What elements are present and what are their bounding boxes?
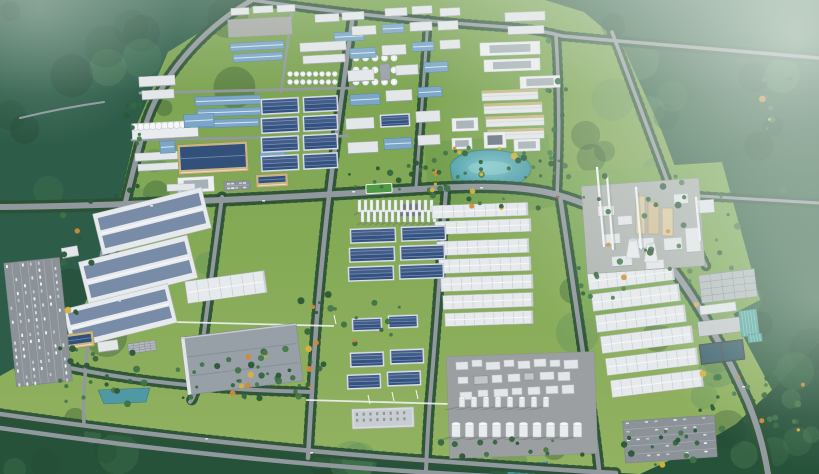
tree — [77, 236, 81, 240]
tree — [306, 382, 311, 387]
tree — [256, 395, 262, 401]
tree — [214, 363, 220, 369]
tree — [282, 346, 288, 352]
tree — [276, 373, 282, 379]
tree — [65, 307, 72, 314]
tree — [432, 169, 435, 172]
tree — [684, 435, 688, 439]
tree — [380, 185, 384, 189]
tree — [91, 352, 95, 356]
tree — [135, 142, 139, 146]
tree — [664, 430, 667, 433]
tree — [694, 440, 699, 445]
tree — [239, 384, 244, 389]
building-wf — [558, 372, 570, 381]
building-wf — [518, 361, 530, 369]
tree — [660, 462, 666, 468]
tree — [354, 185, 357, 188]
building-bw — [350, 351, 385, 367]
tree — [262, 350, 268, 356]
tree — [325, 291, 332, 298]
tree — [130, 125, 135, 130]
building-ww — [445, 310, 533, 326]
tree — [61, 251, 67, 257]
building-lb — [184, 113, 215, 128]
building-wf — [492, 375, 502, 383]
building-wf — [456, 362, 468, 370]
tree — [69, 345, 76, 352]
building-lb — [350, 93, 381, 106]
west-pond — [98, 388, 150, 404]
building-bw — [347, 373, 382, 389]
tree — [327, 305, 334, 312]
tree — [76, 362, 79, 365]
building-wf — [550, 360, 560, 367]
tree — [231, 383, 235, 387]
tree — [314, 340, 319, 345]
building-bw — [350, 227, 396, 244]
tree — [654, 463, 657, 466]
tree — [509, 436, 515, 442]
tree — [248, 372, 254, 378]
tree — [305, 346, 312, 353]
building-bw — [261, 116, 300, 134]
building-tan — [177, 141, 248, 175]
tree — [236, 379, 239, 382]
tree — [88, 260, 94, 266]
tree — [437, 185, 443, 191]
tree — [419, 168, 423, 172]
tree — [195, 385, 198, 388]
building-bw — [388, 314, 418, 328]
vehicle — [310, 452, 313, 454]
tree — [60, 212, 66, 218]
tree — [528, 450, 532, 454]
tree — [543, 447, 548, 452]
building-wf — [540, 372, 554, 380]
tree — [341, 321, 347, 327]
tree — [258, 372, 264, 378]
tree — [242, 394, 247, 399]
tree — [200, 362, 205, 367]
tree — [75, 228, 80, 233]
aerial-render-canvas — [0, 0, 819, 474]
tree — [452, 441, 458, 447]
tree — [371, 300, 377, 306]
tree — [104, 382, 108, 386]
tree — [348, 173, 351, 176]
building-bw — [261, 97, 300, 115]
industrial-park-render: Aerial 3D rendering of an industrial par… — [0, 0, 819, 474]
tree — [430, 188, 435, 193]
building-lb — [160, 141, 176, 154]
tree — [245, 382, 251, 388]
tree — [192, 370, 196, 374]
building-sub — [352, 407, 415, 429]
tree — [396, 177, 402, 183]
tree — [398, 306, 401, 309]
tree — [409, 172, 414, 177]
vehicle — [262, 200, 265, 202]
tree — [398, 188, 401, 191]
tree — [248, 362, 255, 369]
building-wf — [546, 386, 558, 394]
tree — [88, 198, 94, 204]
building-bw — [303, 133, 339, 151]
tree — [58, 346, 62, 350]
tree — [75, 312, 78, 315]
tree — [389, 333, 393, 337]
tree — [64, 384, 68, 388]
tree — [297, 297, 304, 304]
tree — [311, 305, 315, 309]
building-bw — [399, 263, 444, 280]
building-bw — [348, 265, 394, 282]
tree — [493, 440, 498, 445]
tree — [516, 441, 520, 445]
tree — [135, 184, 139, 188]
tree — [693, 429, 697, 433]
tree — [459, 453, 465, 459]
building-bw — [349, 246, 395, 263]
building-bw — [401, 225, 446, 242]
building-wf — [472, 360, 482, 367]
tree — [580, 452, 584, 456]
tree — [188, 395, 193, 400]
building-wf — [534, 359, 546, 367]
tree — [288, 368, 292, 372]
building-bw — [390, 348, 425, 364]
vehicle — [352, 191, 355, 193]
tree — [407, 164, 411, 168]
tree — [430, 193, 436, 199]
building-wf — [562, 385, 574, 394]
tree — [235, 367, 241, 373]
tree — [434, 182, 437, 185]
building-wf — [478, 390, 488, 397]
tree — [230, 390, 236, 396]
building-wf — [508, 374, 520, 382]
building-parking — [224, 180, 250, 190]
tree — [258, 355, 264, 361]
building-wf — [486, 362, 500, 370]
tree — [93, 356, 99, 362]
building-wf — [512, 388, 522, 395]
building-gf — [474, 376, 488, 384]
vehicle — [118, 300, 121, 302]
building-tan — [256, 173, 289, 188]
tree — [137, 136, 142, 141]
tree — [315, 311, 318, 314]
tree — [298, 384, 301, 387]
tree — [304, 328, 311, 335]
tree — [675, 438, 680, 443]
building-bw — [303, 114, 339, 132]
tree — [275, 377, 282, 384]
tree — [684, 453, 689, 458]
building-bw — [400, 244, 445, 261]
tree — [89, 380, 93, 384]
tree — [379, 328, 383, 332]
tree — [551, 439, 554, 442]
tree — [127, 379, 132, 384]
building-wf — [346, 117, 375, 129]
tree — [621, 441, 627, 447]
tree — [352, 339, 356, 343]
tree — [67, 358, 73, 364]
tree — [226, 357, 231, 362]
building-wf — [348, 141, 379, 154]
building-field — [366, 183, 392, 193]
tree — [293, 389, 297, 393]
tree — [266, 372, 269, 375]
tree — [290, 375, 296, 381]
tree — [484, 452, 489, 457]
tree — [255, 382, 259, 386]
building-bw — [380, 113, 411, 128]
vehicle — [205, 438, 208, 440]
building-bw — [261, 154, 300, 172]
building-bw — [303, 152, 339, 170]
tree — [310, 361, 313, 364]
tree — [376, 166, 380, 170]
tree — [628, 450, 635, 457]
tree — [246, 354, 252, 360]
tree — [58, 379, 62, 383]
tree — [114, 388, 120, 394]
tree — [477, 439, 483, 445]
tree — [129, 350, 135, 356]
tree — [373, 180, 377, 184]
tree — [256, 365, 259, 368]
building-lb — [384, 137, 413, 149]
tree — [105, 374, 109, 378]
building-bw — [261, 135, 300, 153]
tree — [385, 318, 391, 324]
tree — [84, 363, 90, 369]
tree — [678, 430, 683, 435]
tree — [114, 194, 118, 198]
tree — [627, 436, 631, 440]
tree — [318, 301, 321, 304]
building-wf — [504, 360, 514, 367]
tree — [438, 439, 445, 446]
tree — [81, 395, 85, 399]
tree — [138, 133, 141, 136]
tree — [321, 361, 327, 367]
building-bw — [387, 370, 422, 386]
tree — [176, 367, 181, 372]
tree — [64, 400, 67, 403]
tree — [60, 259, 67, 266]
tree — [317, 366, 322, 371]
building-wf — [494, 389, 508, 397]
building-gf — [524, 373, 534, 380]
building-bw — [352, 317, 382, 331]
tree — [355, 316, 358, 319]
building-wf — [528, 387, 540, 395]
tree — [387, 170, 393, 176]
tree — [295, 393, 302, 400]
tree — [659, 435, 663, 439]
building-wf — [564, 360, 578, 369]
tree — [306, 366, 312, 372]
tree — [133, 366, 140, 373]
tree — [141, 380, 148, 387]
tree — [182, 396, 185, 399]
tree — [127, 187, 133, 193]
tree — [136, 374, 140, 378]
building-bw — [303, 95, 339, 113]
vehicle — [150, 205, 153, 207]
tree — [690, 456, 697, 463]
tree — [414, 161, 419, 166]
building-wf — [458, 377, 468, 384]
tree — [423, 165, 428, 170]
tree — [124, 400, 131, 407]
tree — [651, 445, 654, 448]
